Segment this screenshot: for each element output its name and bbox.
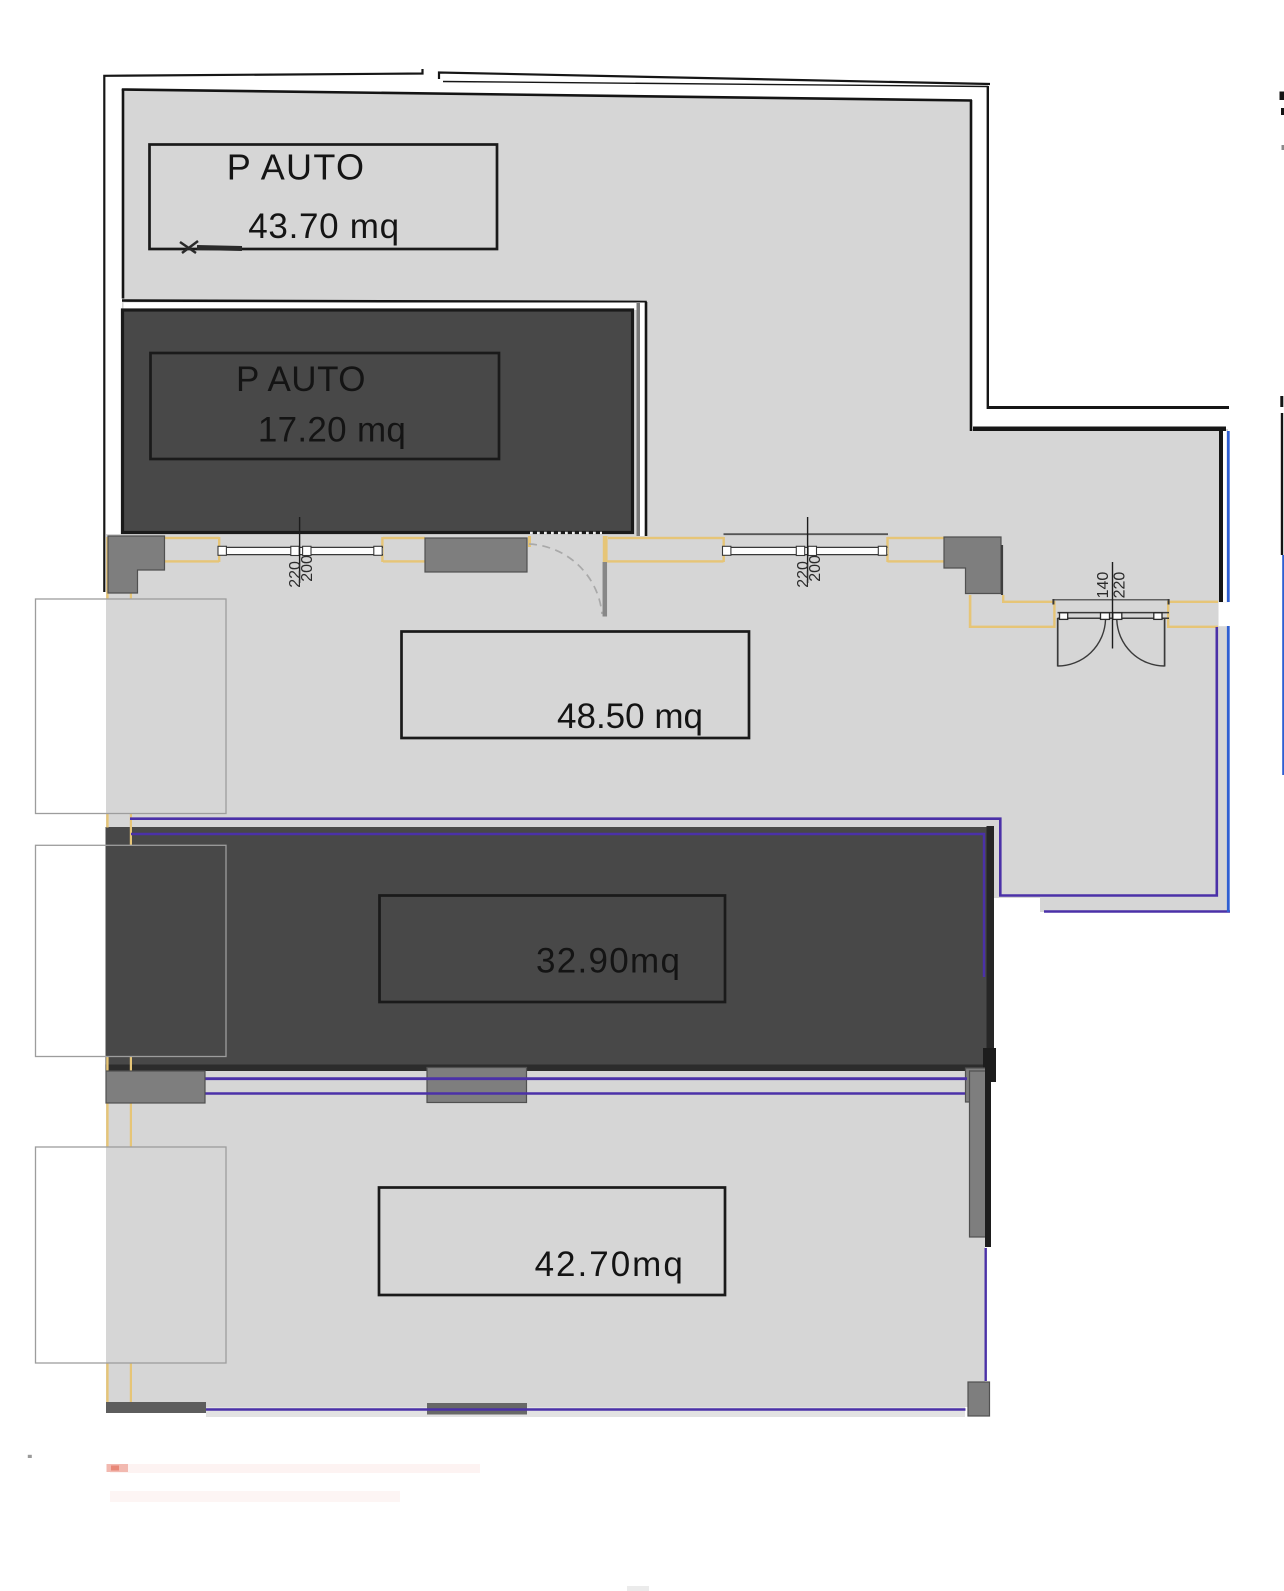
svg-text:220: 220 [287, 561, 304, 588]
svg-text:220: 220 [795, 561, 812, 588]
svg-text:43.70 mq: 43.70 mq [248, 207, 400, 246]
svg-text:P AUTO: P AUTO [236, 360, 366, 399]
svg-text:140: 140 [1095, 572, 1112, 599]
svg-text:220: 220 [1112, 572, 1129, 599]
svg-text:32.90mq: 32.90mq [536, 942, 681, 981]
svg-text:42.70mq: 42.70mq [535, 1245, 685, 1284]
svg-text:17.20 mq: 17.20 mq [258, 411, 406, 450]
svg-text:P AUTO: P AUTO [227, 147, 366, 188]
svg-text:48.50 mq: 48.50 mq [557, 697, 703, 736]
